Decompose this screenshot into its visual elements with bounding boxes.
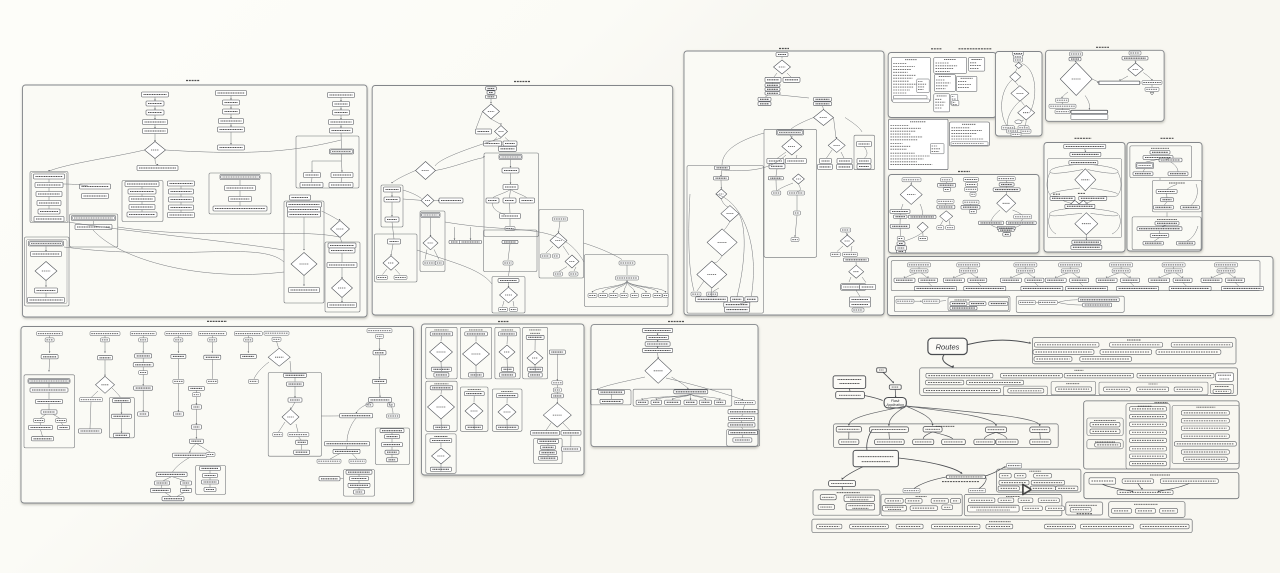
svg-text:Routes: Routes: [936, 343, 960, 352]
svg-text:Application: Application: [885, 403, 904, 407]
